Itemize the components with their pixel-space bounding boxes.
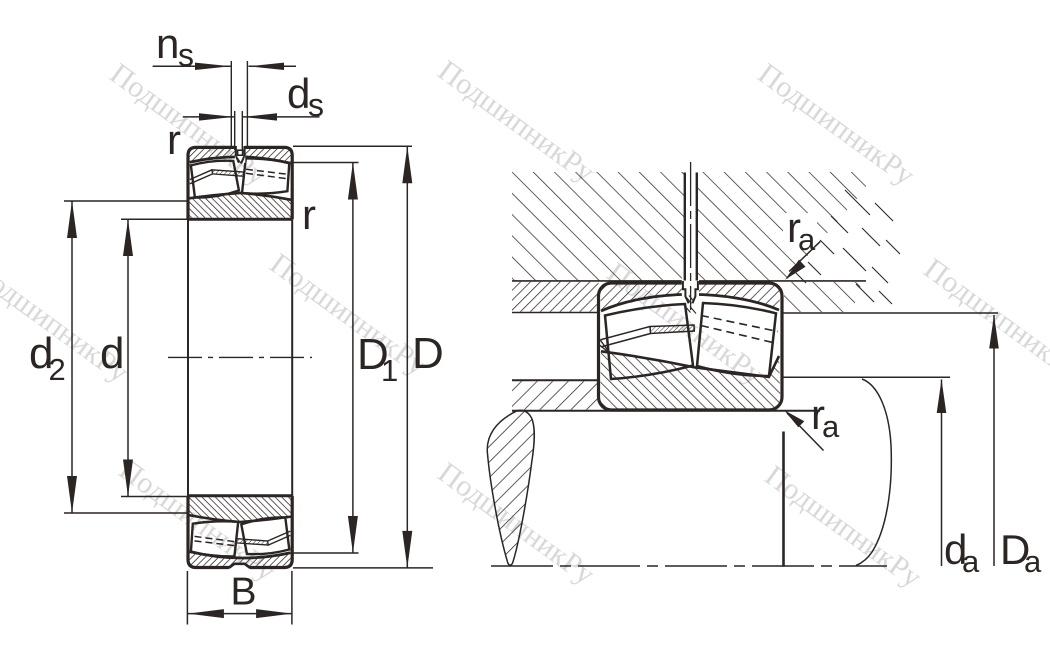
svg-text:1: 1: [381, 353, 398, 388]
svg-text:s: s: [178, 37, 194, 73]
svg-text:n: n: [156, 20, 179, 67]
svg-text:r: r: [167, 116, 181, 163]
svg-text:a: a: [798, 222, 816, 257]
svg-text:r: r: [302, 191, 316, 238]
svg-text:D: D: [412, 329, 444, 378]
svg-text:2: 2: [49, 352, 66, 387]
svg-text:B: B: [231, 571, 257, 614]
svg-text:d: d: [287, 70, 310, 117]
svg-text:a: a: [962, 544, 980, 579]
svg-text:a: a: [822, 409, 840, 444]
svg-text:s: s: [308, 87, 324, 123]
svg-text:d: d: [100, 329, 124, 378]
svg-text:a: a: [1024, 544, 1042, 579]
